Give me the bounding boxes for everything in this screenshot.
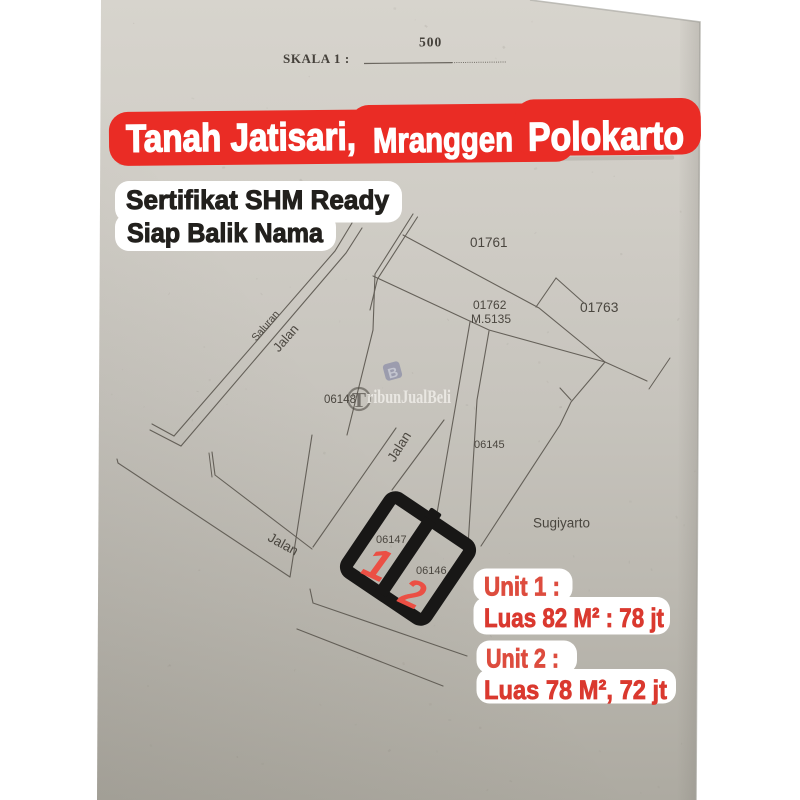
svg-text:Unit 1 :: Unit 1 : (484, 572, 560, 602)
svg-text:SKALA 1 :: SKALA 1 : (283, 51, 350, 66)
svg-text:T: T (352, 388, 366, 412)
svg-text:Mranggen: Mranggen (373, 120, 513, 160)
svg-text:Luas 78 M², 72 jt: Luas 78 M², 72 jt (484, 675, 667, 705)
svg-text:M.5135: M.5135 (471, 312, 511, 326)
svg-text:Unit 2 :: Unit 2 : (486, 644, 559, 674)
svg-text:Luas 82 M² : 78 jt: Luas 82 M² : 78 jt (484, 603, 664, 633)
svg-text:Siap Balik Nama: Siap Balik Nama (127, 218, 324, 248)
svg-text:Sertifikat SHM Ready: Sertifikat SHM Ready (126, 185, 389, 215)
svg-text:Tanah Jatisari,: Tanah Jatisari, (126, 116, 356, 161)
svg-text:01761: 01761 (470, 235, 508, 250)
svg-text:500: 500 (419, 35, 442, 50)
svg-text:01762: 01762 (473, 298, 507, 312)
svg-text:06145: 06145 (474, 439, 505, 451)
svg-text:Sugiyarto: Sugiyarto (533, 516, 590, 531)
svg-text:01763: 01763 (580, 300, 619, 315)
svg-text:Polokarto: Polokarto (528, 114, 684, 159)
svg-text:ribunJualBeli: ribunJualBeli (367, 387, 451, 408)
